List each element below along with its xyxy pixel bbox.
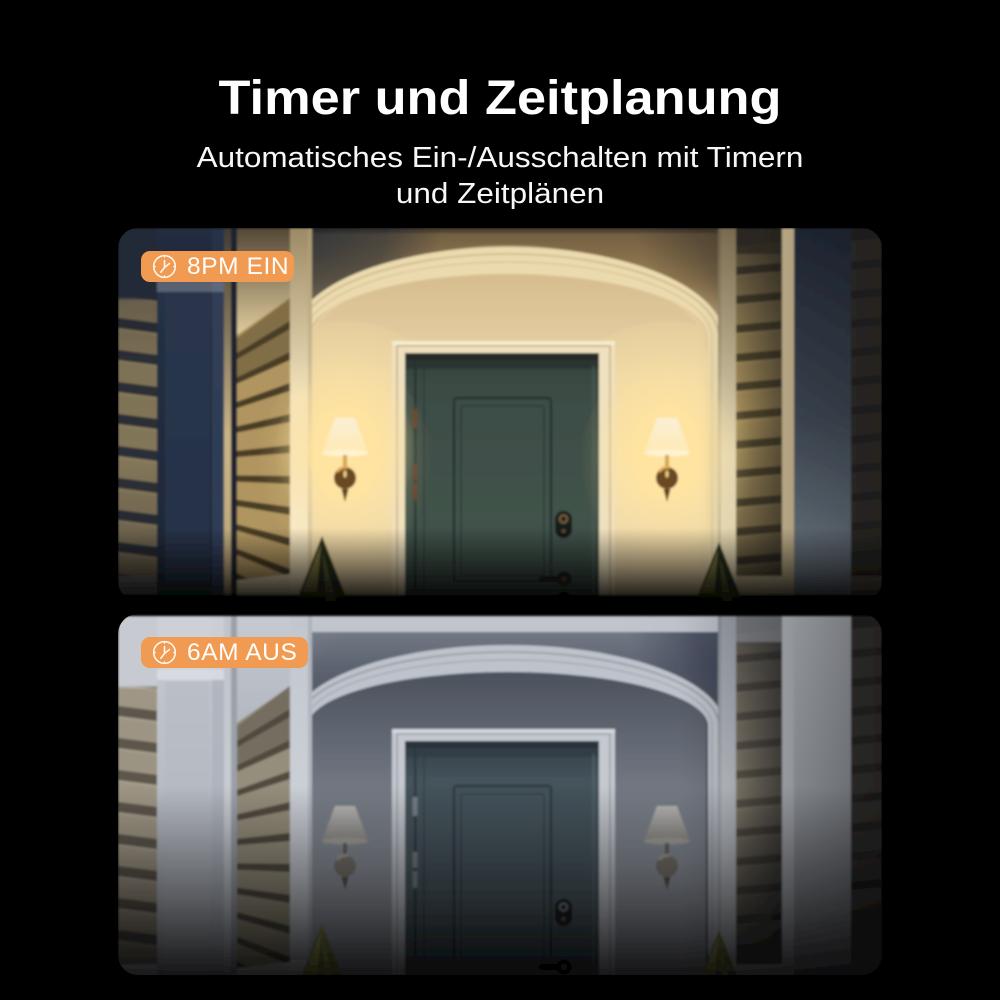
svg-text:8PM EIN: 8PM EIN <box>187 253 289 280</box>
svg-text:6AM AUS: 6AM AUS <box>187 639 297 666</box>
